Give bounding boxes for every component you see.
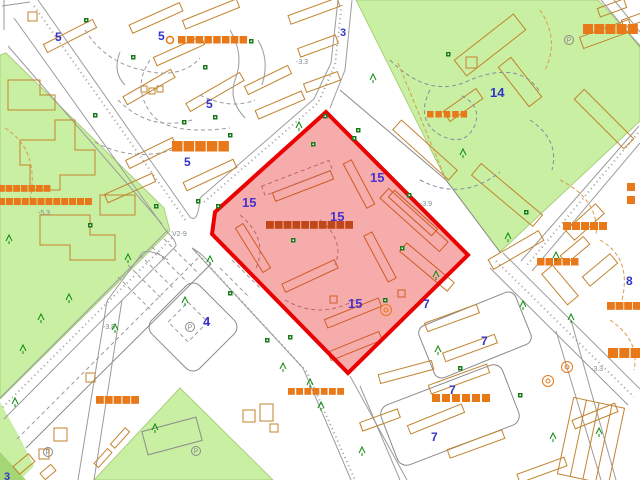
svg-text:5: 5 — [55, 30, 62, 44]
svg-text:-5.3: -5.3 — [38, 210, 50, 217]
svg-text:-3.9: -3.9 — [420, 201, 432, 208]
svg-text:3: 3 — [4, 471, 10, 480]
svg-text:3: 3 — [340, 27, 346, 39]
svg-text:P: P — [567, 38, 572, 45]
svg-text:4: 4 — [203, 314, 211, 329]
svg-text:-3.3: -3.3 — [296, 59, 308, 66]
svg-text:15: 15 — [348, 296, 362, 311]
svg-text:P: P — [194, 449, 199, 456]
svg-text:7: 7 — [431, 430, 438, 444]
svg-text:7: 7 — [423, 297, 430, 311]
svg-text:7: 7 — [481, 334, 488, 348]
svg-text:15: 15 — [330, 209, 344, 224]
svg-text:5: 5 — [158, 29, 165, 43]
svg-text:14: 14 — [490, 85, 505, 100]
svg-text:P: P — [46, 450, 51, 457]
svg-text:5: 5 — [184, 155, 191, 169]
svg-text:-3.3: -3.3 — [591, 366, 603, 373]
svg-text:7: 7 — [449, 383, 456, 397]
svg-text:8: 8 — [626, 274, 633, 288]
svg-text:15: 15 — [370, 170, 384, 185]
svg-text:P: P — [188, 325, 193, 332]
svg-text:5: 5 — [206, 97, 213, 111]
svg-text:V2-9: V2-9 — [172, 231, 187, 238]
svg-text:15: 15 — [242, 195, 256, 210]
